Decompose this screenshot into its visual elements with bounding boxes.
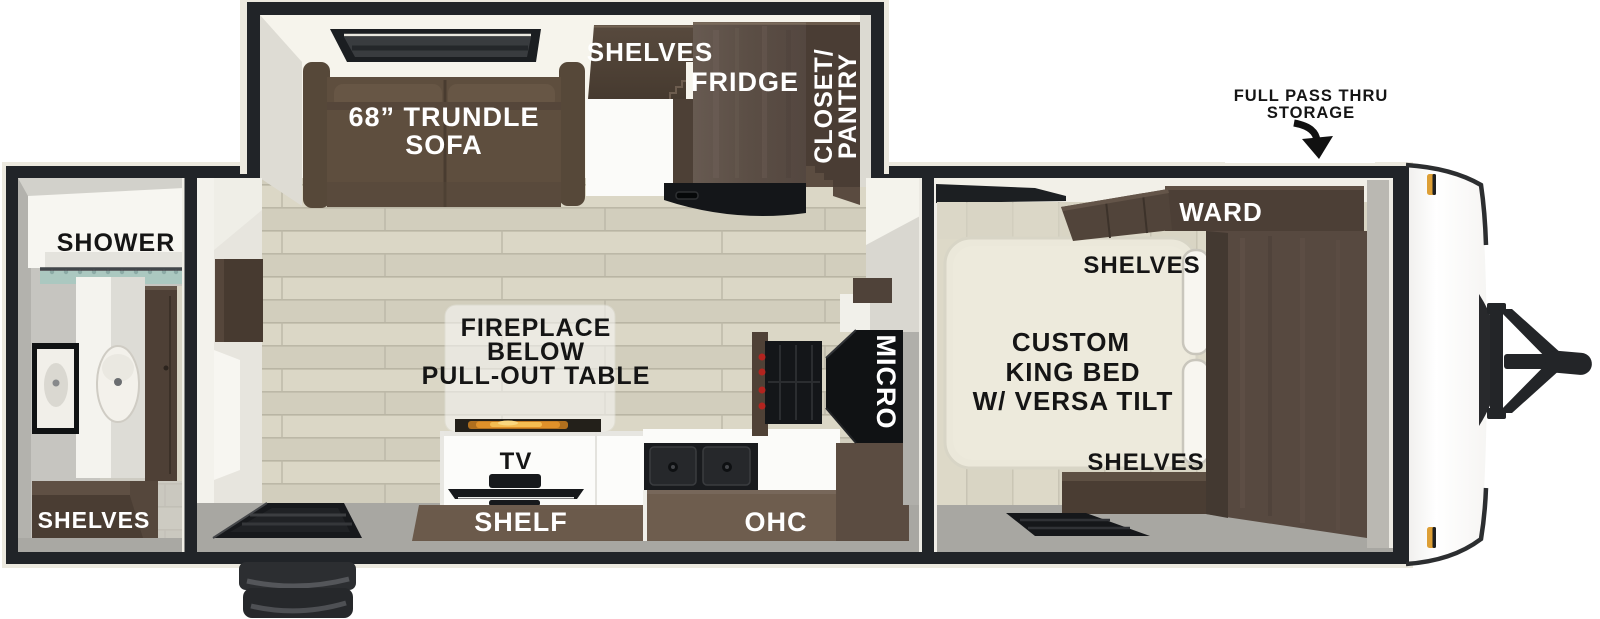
svg-text:SHELVES: SHELVES bbox=[587, 37, 713, 67]
svg-text:OHC: OHC bbox=[745, 507, 808, 537]
svg-text:PANTRY: PANTRY bbox=[834, 53, 862, 159]
svg-text:SHOWER: SHOWER bbox=[57, 229, 176, 257]
svg-text:STORAGE: STORAGE bbox=[1267, 104, 1355, 122]
svg-text:TV: TV bbox=[500, 448, 533, 475]
svg-text:SOFA: SOFA bbox=[405, 130, 483, 160]
svg-text:SHELVES: SHELVES bbox=[1083, 252, 1200, 279]
svg-text:PULL-OUT TABLE: PULL-OUT TABLE bbox=[422, 362, 651, 390]
svg-text:WARD: WARD bbox=[1179, 197, 1262, 227]
svg-text:W/ VERSA TILT: W/ VERSA TILT bbox=[973, 386, 1174, 416]
svg-text:68” TRUNDLE: 68” TRUNDLE bbox=[348, 102, 539, 132]
svg-text:CUSTOM: CUSTOM bbox=[1012, 327, 1130, 357]
svg-text:MICRO: MICRO bbox=[871, 335, 901, 430]
svg-text:SHELVES: SHELVES bbox=[38, 507, 151, 533]
svg-text:SHELVES: SHELVES bbox=[1087, 449, 1204, 476]
svg-text:SHELF: SHELF bbox=[474, 507, 568, 537]
svg-text:FRIDGE: FRIDGE bbox=[691, 67, 799, 97]
svg-text:KING BED: KING BED bbox=[1005, 357, 1140, 387]
svg-text:FULL PASS THRU: FULL PASS THRU bbox=[1234, 87, 1389, 105]
